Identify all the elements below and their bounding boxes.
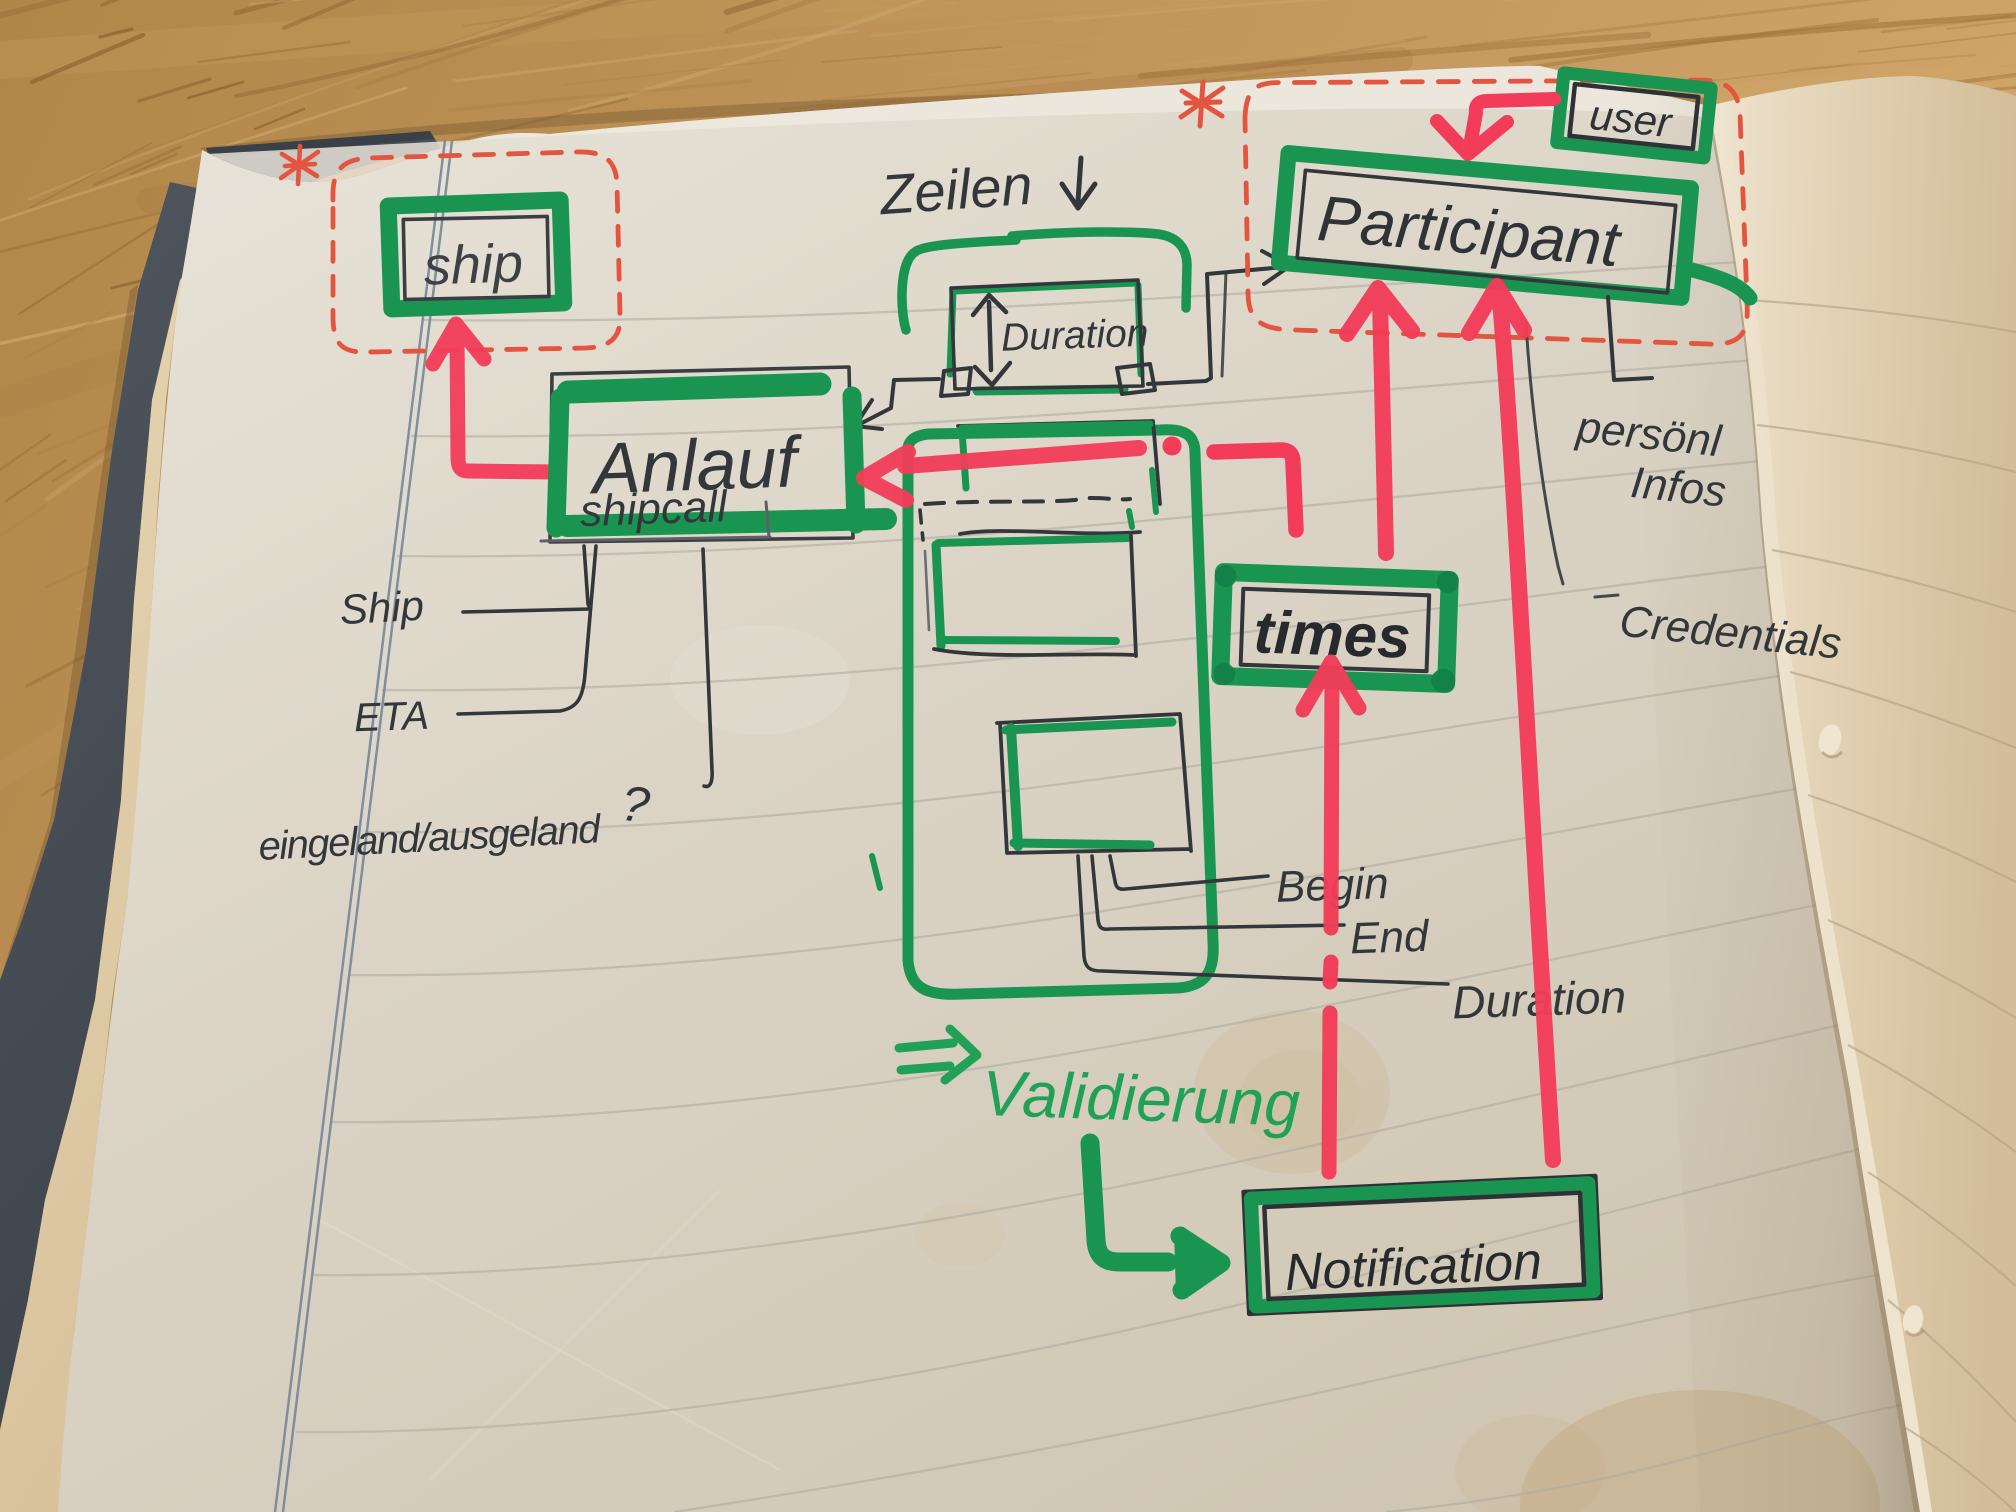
svg-text:Ship: Ship [339,582,425,633]
svg-text:Validierung: Validierung [981,1057,1302,1140]
svg-text:Notification: Notification [1284,1233,1544,1303]
svg-text:End: End [1349,912,1430,964]
svg-text:ETA: ETA [353,694,429,741]
svg-text:shipcall: shipcall [579,482,729,536]
svg-text:user: user [1587,91,1675,146]
svg-text:Infos: Infos [1628,458,1728,517]
svg-text:ship: ship [423,233,524,296]
svg-text:Zeilen: Zeilen [876,153,1035,227]
svg-text:Duration: Duration [1000,312,1149,360]
